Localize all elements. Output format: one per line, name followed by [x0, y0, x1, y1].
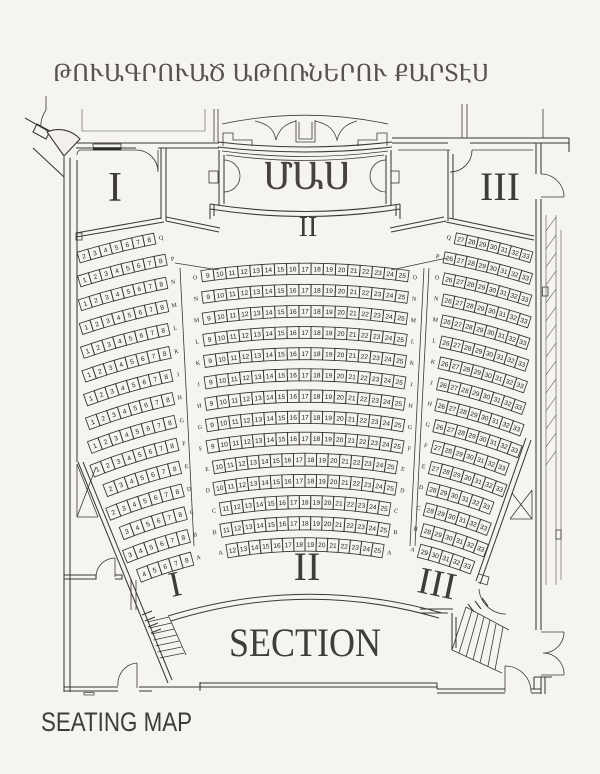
svg-text:21: 21: [347, 438, 355, 446]
svg-text:14: 14: [256, 522, 264, 530]
svg-text:13: 13: [253, 289, 261, 297]
svg-text:23: 23: [357, 502, 365, 510]
svg-text:22: 22: [346, 522, 354, 530]
svg-text:13: 13: [255, 437, 263, 445]
svg-text:23: 23: [371, 397, 379, 405]
svg-text:15: 15: [277, 330, 285, 337]
svg-text:10: 10: [216, 292, 224, 300]
svg-text:14: 14: [266, 437, 274, 444]
svg-text:15: 15: [278, 394, 286, 401]
svg-text:16: 16: [290, 436, 298, 443]
svg-text:10: 10: [216, 485, 225, 493]
svg-text:21: 21: [341, 480, 349, 488]
svg-text:16: 16: [289, 330, 297, 337]
svg-text:25: 25: [394, 422, 403, 430]
svg-text:I: I: [108, 165, 122, 211]
svg-text:17: 17: [301, 351, 309, 358]
svg-text:19: 19: [325, 288, 333, 295]
svg-text:20: 20: [324, 500, 332, 507]
svg-text:19: 19: [325, 309, 333, 316]
svg-text:12: 12: [241, 311, 249, 319]
svg-text:20: 20: [336, 394, 344, 401]
svg-text:24: 24: [368, 525, 377, 533]
svg-text:13: 13: [249, 459, 257, 467]
svg-text:24: 24: [384, 335, 392, 343]
svg-text:25: 25: [380, 505, 389, 513]
svg-text:11: 11: [232, 440, 240, 448]
svg-text:18: 18: [313, 436, 321, 443]
svg-text:24: 24: [386, 292, 394, 300]
svg-text:24: 24: [375, 462, 384, 470]
svg-text:14: 14: [266, 415, 274, 422]
svg-text:12: 12: [243, 417, 251, 425]
svg-text:10: 10: [220, 441, 229, 449]
svg-text:25: 25: [397, 315, 406, 323]
svg-text:25: 25: [387, 463, 396, 471]
svg-text:25: 25: [393, 443, 402, 451]
svg-text:18: 18: [301, 500, 309, 507]
svg-text:15: 15: [277, 351, 285, 358]
svg-text:14: 14: [261, 480, 269, 488]
svg-text:25: 25: [395, 379, 404, 387]
svg-text:II: II: [299, 212, 318, 243]
svg-text:16: 16: [289, 288, 297, 295]
svg-text:15: 15: [277, 267, 285, 274]
svg-text:21: 21: [348, 374, 356, 382]
svg-text:12: 12: [243, 439, 251, 447]
svg-text:25: 25: [396, 358, 405, 366]
svg-text:13: 13: [245, 524, 253, 532]
svg-text:20: 20: [330, 458, 338, 465]
svg-text:12: 12: [240, 268, 248, 276]
svg-text:23: 23: [373, 333, 381, 341]
svg-text:23: 23: [370, 440, 378, 448]
svg-text:17: 17: [301, 436, 309, 443]
svg-text:13: 13: [253, 331, 261, 339]
svg-text:24: 24: [362, 546, 371, 554]
svg-text:18: 18: [313, 351, 321, 358]
svg-text:24: 24: [383, 399, 392, 407]
svg-text:22: 22: [361, 311, 369, 319]
svg-text:14: 14: [251, 544, 259, 552]
svg-text:12: 12: [241, 290, 249, 298]
svg-text:24: 24: [385, 313, 393, 321]
svg-text:12: 12: [233, 504, 242, 512]
svg-text:11: 11: [229, 312, 237, 320]
svg-text:24: 24: [386, 271, 394, 279]
svg-text:20: 20: [336, 373, 344, 380]
svg-text:16: 16: [279, 500, 287, 507]
svg-text:21: 21: [349, 310, 357, 318]
svg-text:19: 19: [325, 330, 333, 337]
svg-text:22: 22: [361, 290, 369, 298]
svg-text:23: 23: [371, 418, 379, 426]
svg-text:19: 19: [325, 351, 333, 358]
svg-text:15: 15: [273, 479, 281, 486]
svg-text:19: 19: [324, 415, 332, 422]
svg-text:11: 11: [222, 505, 230, 513]
svg-text:19: 19: [326, 267, 334, 274]
svg-text:13: 13: [254, 374, 262, 382]
svg-text:13: 13: [253, 310, 261, 318]
svg-text:SECTION: SECTION: [229, 620, 381, 665]
svg-text:19: 19: [313, 500, 321, 507]
svg-text:18: 18: [307, 457, 315, 464]
svg-text:12: 12: [234, 525, 243, 533]
svg-text:17: 17: [301, 415, 309, 422]
svg-text:20: 20: [330, 479, 338, 486]
svg-text:14: 14: [266, 373, 274, 380]
svg-text:18: 18: [301, 521, 309, 528]
svg-text:23: 23: [357, 524, 365, 532]
svg-text:15: 15: [262, 543, 270, 551]
svg-text:21: 21: [349, 331, 357, 339]
svg-text:24: 24: [369, 504, 378, 512]
svg-text:19: 19: [325, 373, 333, 380]
svg-text:22: 22: [340, 543, 348, 551]
svg-text:12: 12: [238, 460, 246, 468]
svg-text:14: 14: [265, 331, 273, 338]
svg-text:25: 25: [373, 547, 382, 555]
svg-text:16: 16: [289, 351, 297, 358]
svg-text:17: 17: [301, 266, 309, 273]
svg-text:16: 16: [284, 457, 292, 464]
svg-text:21: 21: [348, 395, 356, 403]
svg-text:22: 22: [360, 375, 368, 383]
svg-text:22: 22: [362, 269, 370, 277]
svg-text:25: 25: [398, 272, 407, 280]
svg-text:20: 20: [337, 331, 345, 338]
svg-text:20: 20: [336, 437, 344, 444]
svg-text:25: 25: [394, 400, 403, 408]
svg-text:10: 10: [220, 420, 229, 428]
svg-text:21: 21: [341, 458, 349, 466]
svg-text:23: 23: [374, 270, 382, 278]
svg-text:20: 20: [338, 267, 346, 274]
svg-text:24: 24: [383, 377, 392, 385]
svg-text:19: 19: [313, 521, 321, 528]
svg-text:16: 16: [289, 266, 297, 273]
svg-text:21: 21: [350, 268, 358, 275]
svg-text:15: 15: [278, 436, 286, 443]
svg-text:13: 13: [240, 546, 249, 554]
svg-text:15: 15: [278, 373, 286, 380]
svg-text:11: 11: [231, 397, 239, 405]
svg-text:17: 17: [301, 330, 309, 337]
svg-text:15: 15: [278, 415, 286, 422]
svg-text:19: 19: [324, 436, 332, 443]
svg-text:18: 18: [313, 309, 321, 316]
svg-text:17: 17: [301, 372, 309, 379]
svg-text:11: 11: [231, 418, 239, 426]
svg-text:17: 17: [290, 500, 298, 507]
svg-text:17: 17: [296, 457, 304, 464]
svg-text:13: 13: [250, 480, 258, 488]
svg-text:20: 20: [338, 288, 346, 295]
svg-text:11: 11: [229, 291, 237, 299]
svg-text:10: 10: [218, 356, 227, 364]
svg-text:13: 13: [244, 502, 252, 510]
svg-text:21: 21: [335, 522, 343, 530]
svg-text:22: 22: [361, 332, 369, 340]
svg-text:14: 14: [265, 352, 273, 359]
svg-text:24: 24: [375, 483, 384, 491]
svg-text:12: 12: [241, 332, 249, 340]
svg-text:17: 17: [296, 478, 304, 485]
svg-text:18: 18: [313, 330, 321, 337]
svg-text:25: 25: [396, 336, 405, 344]
svg-text:13: 13: [252, 268, 260, 275]
svg-text:10: 10: [219, 377, 228, 385]
svg-text:11: 11: [231, 376, 239, 384]
svg-text:13: 13: [254, 395, 262, 403]
svg-text:23: 23: [364, 460, 372, 468]
svg-text:22: 22: [360, 396, 368, 404]
svg-text:10: 10: [219, 399, 228, 407]
svg-text:23: 23: [364, 482, 372, 490]
svg-text:22: 22: [346, 501, 354, 509]
svg-text:20: 20: [324, 521, 332, 528]
svg-text:19: 19: [318, 478, 326, 485]
svg-text:10: 10: [216, 271, 224, 279]
svg-text:20: 20: [337, 352, 345, 359]
svg-text:13: 13: [255, 416, 263, 424]
svg-text:11: 11: [230, 355, 238, 363]
svg-text:15: 15: [267, 522, 275, 530]
svg-text:22: 22: [353, 459, 361, 467]
svg-text:11: 11: [230, 333, 238, 341]
svg-text:22: 22: [359, 439, 367, 447]
svg-text:25: 25: [379, 527, 388, 535]
svg-text:13: 13: [254, 353, 262, 361]
svg-text:18: 18: [313, 372, 321, 379]
svg-text:16: 16: [284, 478, 292, 485]
svg-text:16: 16: [290, 415, 298, 422]
svg-text:16: 16: [273, 543, 281, 550]
svg-text:12: 12: [238, 482, 246, 490]
svg-text:14: 14: [265, 309, 273, 316]
svg-text:21: 21: [335, 500, 343, 508]
svg-text:16: 16: [289, 372, 297, 379]
svg-text:11: 11: [228, 270, 236, 278]
svg-text:21: 21: [348, 416, 356, 424]
svg-text:14: 14: [261, 458, 269, 466]
svg-text:15: 15: [267, 500, 275, 508]
svg-text:15: 15: [272, 458, 280, 465]
svg-text:23: 23: [351, 544, 359, 552]
svg-text:21: 21: [329, 543, 337, 550]
svg-text:25: 25: [397, 294, 406, 302]
svg-text:21: 21: [350, 289, 358, 297]
svg-text:15: 15: [277, 309, 285, 316]
svg-text:23: 23: [372, 355, 380, 363]
svg-text:17: 17: [301, 309, 309, 316]
svg-text:18: 18: [313, 266, 321, 273]
svg-text:22: 22: [352, 480, 360, 488]
svg-text:18: 18: [313, 394, 321, 401]
svg-text:23: 23: [372, 376, 380, 384]
svg-text:16: 16: [289, 309, 297, 316]
svg-text:24: 24: [382, 441, 391, 449]
svg-text:18: 18: [313, 288, 321, 295]
svg-text:12: 12: [228, 547, 237, 555]
svg-text:11: 11: [227, 483, 235, 491]
svg-text:10: 10: [217, 313, 225, 321]
svg-text:10: 10: [215, 463, 224, 471]
svg-text:22: 22: [359, 417, 367, 425]
svg-text:19: 19: [325, 394, 333, 401]
svg-text:12: 12: [242, 396, 250, 404]
svg-text:11: 11: [227, 462, 235, 470]
svg-text:18: 18: [313, 415, 321, 422]
svg-text:18: 18: [307, 478, 315, 485]
svg-text:SEATING MAP: SEATING MAP: [41, 707, 192, 737]
svg-text:17: 17: [284, 542, 292, 549]
svg-text:21: 21: [349, 353, 357, 361]
svg-text:16: 16: [279, 521, 287, 528]
svg-text:19: 19: [318, 457, 326, 464]
svg-text:II: II: [294, 544, 321, 589]
svg-text:20: 20: [337, 309, 345, 316]
svg-text:16: 16: [290, 394, 298, 401]
svg-text:23: 23: [373, 291, 381, 299]
svg-text:20: 20: [336, 415, 344, 422]
svg-text:17: 17: [301, 288, 309, 295]
svg-text:23: 23: [373, 312, 381, 320]
svg-text:14: 14: [265, 267, 273, 274]
svg-text:25: 25: [386, 485, 395, 493]
svg-text:10: 10: [217, 335, 225, 343]
svg-text:14: 14: [266, 394, 274, 401]
svg-text:24: 24: [382, 420, 391, 428]
svg-text:17: 17: [301, 394, 309, 401]
svg-text:14: 14: [256, 501, 264, 509]
svg-text:III: III: [480, 164, 520, 209]
svg-text:24: 24: [384, 356, 393, 364]
svg-text:12: 12: [242, 353, 250, 361]
svg-text:17: 17: [290, 521, 298, 528]
svg-text:12: 12: [242, 375, 250, 383]
svg-text:22: 22: [360, 353, 368, 361]
svg-text:14: 14: [265, 288, 273, 295]
svg-text:15: 15: [277, 288, 285, 295]
